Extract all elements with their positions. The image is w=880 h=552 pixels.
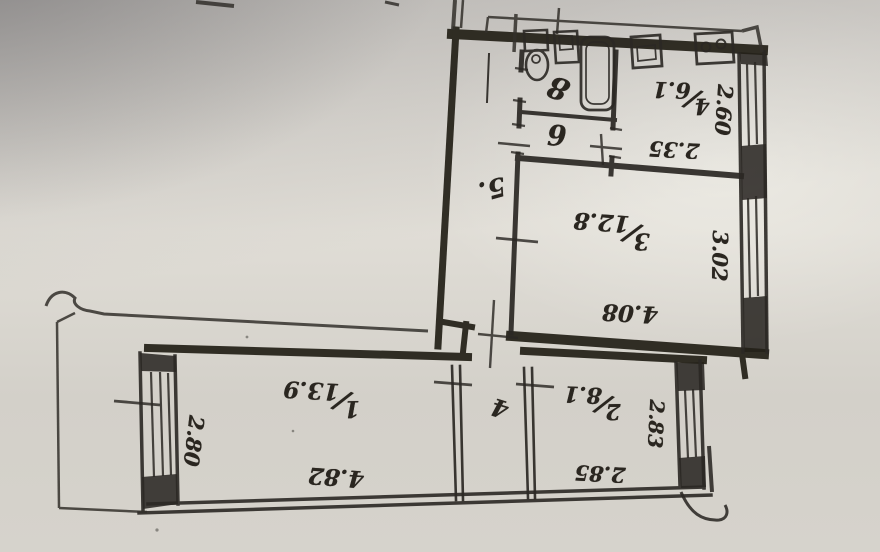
room-1-depth-dimension: 2.80 <box>180 414 207 467</box>
room-3-depth-dimension: 3.02 <box>709 230 731 282</box>
scanned-floor-plan-photo: 8 6 4/6.1 2.35 2.60 5. 3/12.8 4.08 3.02 … <box>0 0 880 552</box>
kitchen-area: 6.1 <box>652 78 691 101</box>
bathtub-basin <box>586 42 609 104</box>
toilet-drain <box>532 55 540 63</box>
room-2-width-dimension: 2.85 <box>574 462 626 486</box>
survey-tick-marks <box>114 134 622 405</box>
partition-walls <box>452 52 741 500</box>
room-2-depth-dimension: 2.83 <box>645 399 668 449</box>
room-3-width-dimension: 4.08 <box>601 300 658 326</box>
kitchen-width-dimension: 2.35 <box>648 138 700 162</box>
room-3-area: 12.8 <box>573 209 630 236</box>
kitchen-depth-dimension: 2.60 <box>712 84 737 136</box>
floor-plan-drawing <box>0 0 880 552</box>
room-1-width-dimension: 4.82 <box>307 464 364 491</box>
wc-number-label: 6 <box>547 120 567 149</box>
paper-edge-marks <box>196 2 399 6</box>
room-1-area: 13.9 <box>283 377 340 403</box>
room-2-area: 8.1 <box>563 382 602 406</box>
balcony-outline <box>46 292 428 512</box>
